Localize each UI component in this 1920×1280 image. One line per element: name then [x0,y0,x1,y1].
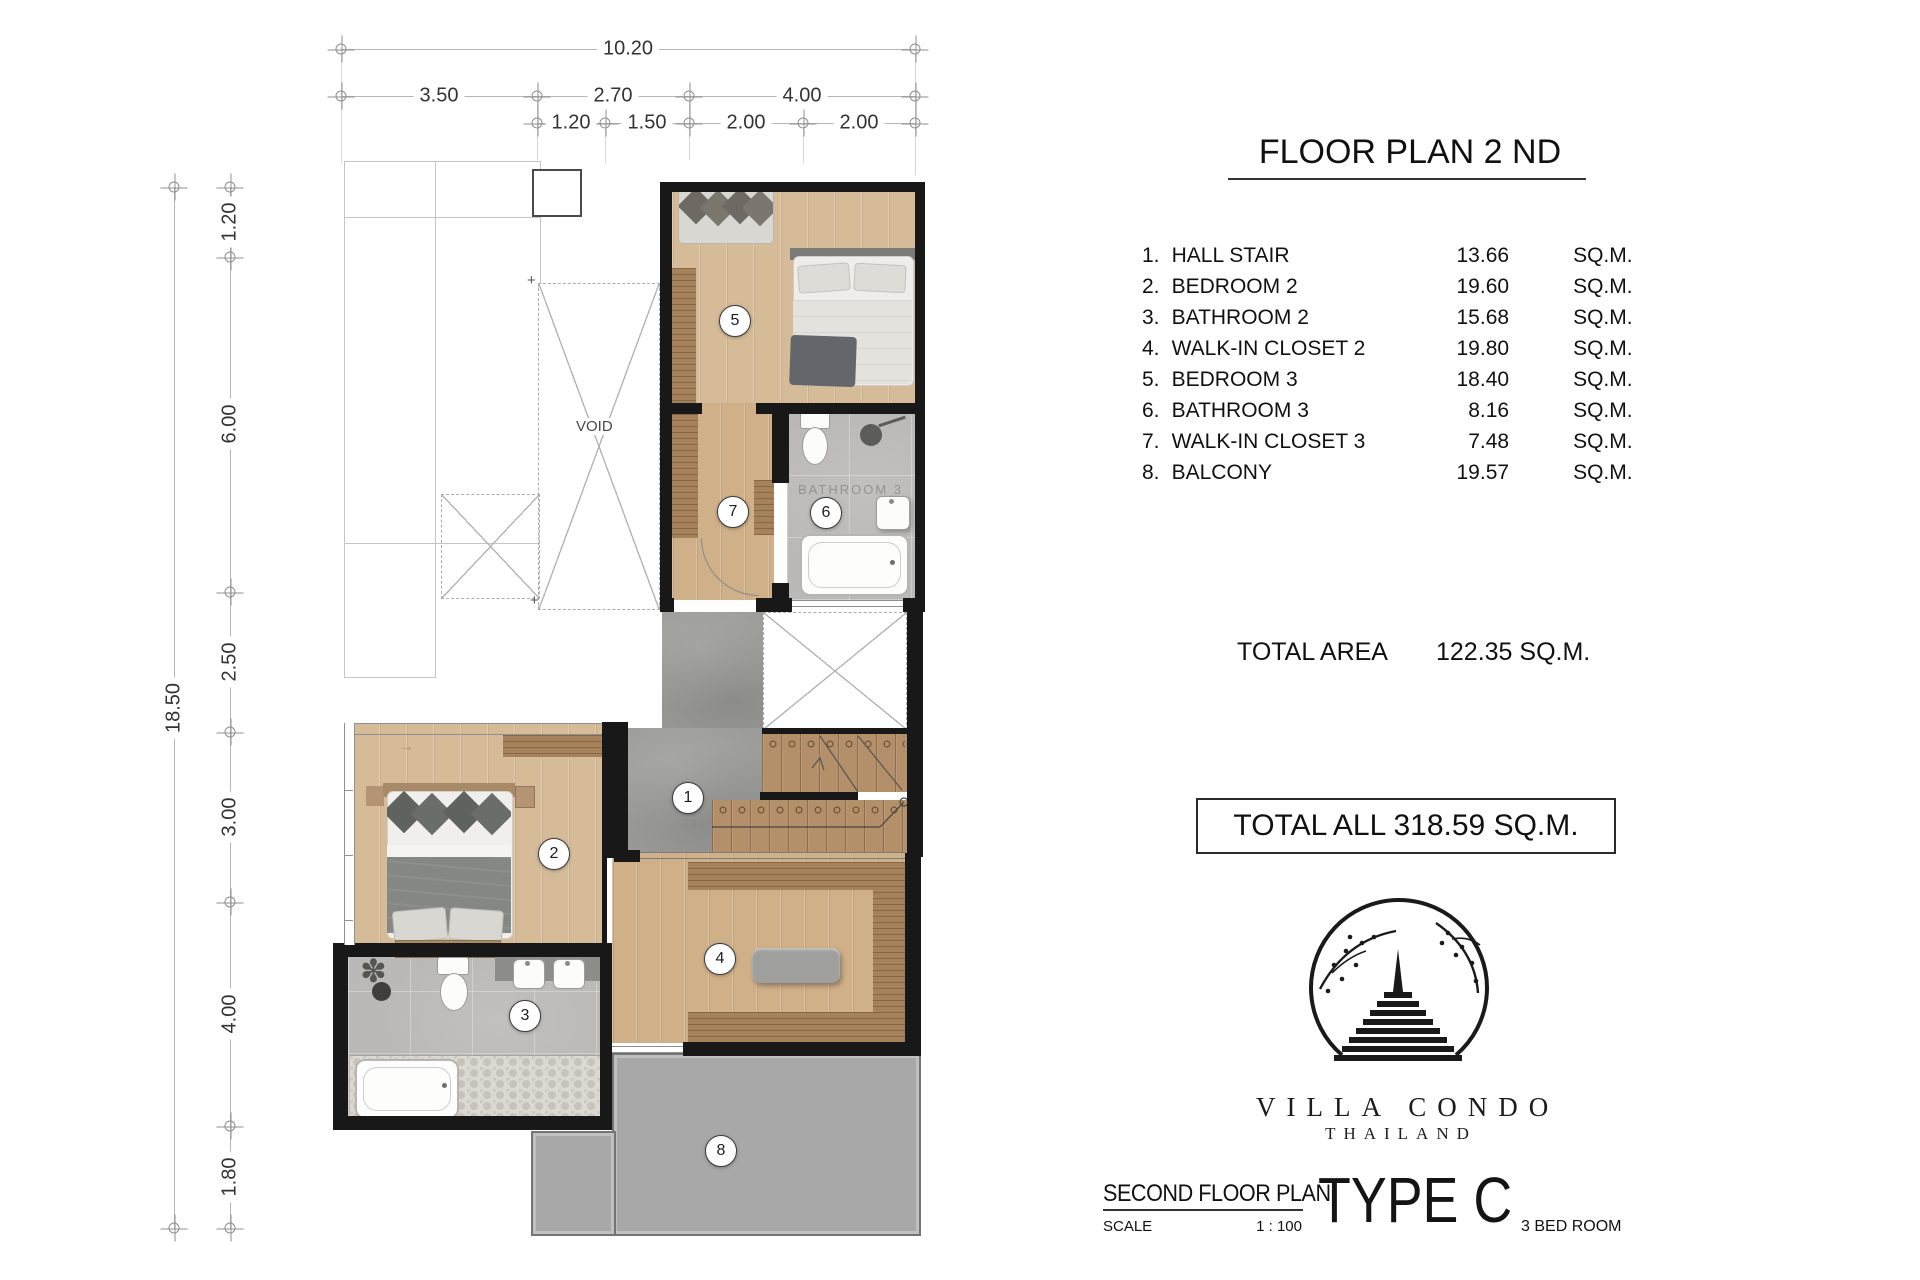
dim-label: 4.00 [219,989,242,1040]
window-mullion [344,920,353,921]
legend-unit: SQ.M. [1573,399,1652,423]
wall [602,722,628,858]
dim-label: 1.50 [622,112,673,135]
dim-label-total-height: 18.50 [163,677,186,739]
dim-marker [910,44,921,55]
legend-area: 19.57 [1430,461,1509,485]
room-badge-bathroom-3: 6 [810,497,842,529]
dim-marker [336,44,347,55]
room-legend: 1.HALL STAIR13.66SQ.M. 2.BEDROOM 219.60S… [1142,240,1652,488]
dim-marker [225,1223,236,1234]
survey-plus-mark: + [527,272,536,289]
shaft-box [532,169,582,217]
dim-marker [169,182,180,193]
legend-unit: SQ.M. [1573,244,1652,268]
second-floor-plan-label: SECOND FLOOR PLAN [1103,1180,1331,1208]
dim-marker [532,118,543,129]
wall [756,598,792,612]
floor-plan-sheet: 10.20 3.50 2.70 4.00 1.20 1.50 2.00 2.00… [0,0,1920,1280]
wall [333,943,612,957]
wall [660,182,925,192]
legend-num: 8. [1142,461,1172,485]
bed-foot-pillow [448,907,504,943]
dim-label: 2.00 [721,112,772,135]
wall [905,853,921,1056]
legend-num: 5. [1142,368,1172,392]
bathtub-drain [890,560,895,565]
balcony-door-line [612,1052,683,1053]
window-mullion [344,855,353,856]
room-badge-bathroom-2: 3 [509,1000,541,1032]
roof-outline-line [344,161,345,677]
wall [614,850,640,862]
shelf-bedroom-2 [503,735,602,757]
total-area-value: 122.35 SQ.M. [1436,638,1590,667]
total-all-box: TOTAL ALL 318.59 SQ.M. [1196,798,1616,854]
scale-label: SCALE [1103,1218,1152,1235]
balcony-deck-left [531,1131,616,1236]
legend-num: 7. [1142,430,1172,454]
legend-name: BEDROOM 3 [1172,368,1431,392]
partition-line [640,858,905,859]
partition-line [640,852,905,853]
legend-unit: SQ.M. [1573,306,1652,330]
bathtub-basin [363,1067,451,1111]
void-label: VOID [572,418,617,435]
legend-name: HALL STAIR [1172,244,1431,268]
page-title: FLOOR PLAN 2 ND [1230,133,1590,172]
legend-name: BEDROOM 2 [1172,275,1431,299]
plant-pot [372,982,391,1001]
legend-row: 2.BEDROOM 219.60SQ.M. [1142,271,1652,302]
legend-area: 19.80 [1430,337,1509,361]
wardrobe-closet-3-right [754,480,774,535]
bed-pillow-zone [387,791,511,839]
legend-name: WALK-IN CLOSET 3 [1172,430,1431,454]
legend-area: 7.48 [1430,430,1509,454]
dim-label: 1.80 [219,1152,242,1203]
legend-row: 1.HALL STAIR13.66SQ.M. [1142,240,1652,271]
vanity-counter [495,957,602,981]
wall [333,1116,612,1130]
legend-unit: SQ.M. [1573,275,1652,299]
legend-unit: SQ.M. [1573,368,1652,392]
legend-num: 4. [1142,337,1172,361]
wall [660,182,672,612]
legend-unit: SQ.M. [1573,461,1652,485]
bathroom-3-watermark: BATHROOM 3 [798,482,903,497]
legend-row: 5.BEDROOM 318.40SQ.M. [1142,364,1652,395]
bed-pillow [797,262,851,294]
light-wall-line [352,734,602,735]
balcony-deck [612,1053,921,1236]
legend-unit: SQ.M. [1573,430,1652,454]
stair-void-cross-box [763,612,907,730]
bed-bedroom-2 [383,783,515,957]
dim-marker [225,182,236,193]
logo-name: VILLA CONDO [1256,1092,1546,1123]
wall [660,403,702,414]
legend-area: 8.16 [1430,399,1509,423]
legend-name: BALCONY [1172,461,1431,485]
legend-name: BATHROOM 3 [1172,399,1431,423]
logo-sub: THAILAND [1256,1124,1546,1144]
dim-label: 6.00 [219,399,242,450]
bed-foot-pillow [392,907,449,944]
faucet-dot [889,499,894,504]
legend-num: 2. [1142,275,1172,299]
legend-row: 7.WALK-IN CLOSET 37.48SQ.M. [1142,426,1652,457]
room-badge-closet-3: 7 [717,496,749,528]
dim-marker [225,252,236,263]
type-label: TYPE C [1318,1163,1512,1237]
dim-line-left-2 [230,187,231,1228]
legend-area: 18.40 [1430,368,1509,392]
dim-marker [684,118,695,129]
bathtub-bathroom-2 [355,1059,459,1119]
roof-outline-line [344,217,540,218]
wall [602,858,607,948]
wall [333,943,348,1130]
legend-area: 13.66 [1430,244,1509,268]
dim-marker [225,587,236,598]
survey-plus-mark: + [530,592,539,609]
legend-row: 8.BALCONY19.57SQ.M. [1142,457,1652,488]
room-badge-bedroom-2: 2 [538,838,570,870]
dim-label: 3.50 [414,85,465,108]
entry-arrow-icon: → [398,738,414,756]
bedroom-count-label: 3 BED ROOM [1521,1218,1621,1236]
title-underline [1228,178,1586,180]
dim-marker [225,1121,236,1132]
total-area-row: TOTAL AREA 122.35 SQ.M. [1237,638,1590,667]
bathtub-drain [442,1083,447,1088]
dim-label: 2.50 [219,637,242,688]
sofa-bedroom-3 [678,186,774,244]
legend-name: WALK-IN CLOSET 2 [1172,337,1431,361]
dim-label-total-width: 10.20 [597,38,659,61]
bed-pillow [853,263,906,294]
bathtub-bathroom-3 [800,534,909,596]
dim-label: 1.20 [219,197,242,248]
skylight-cross-box [441,494,540,599]
nightstand [366,786,384,806]
dim-marker [225,727,236,738]
stair-down-label: DN [683,816,703,832]
villa-condo-logo-icon [1286,893,1512,1079]
stair-landing-floor [662,612,763,728]
wardrobe-closet-3-left [672,414,698,538]
room-badge-closet-2: 4 [704,943,736,975]
room-badge-balcony: 8 [705,1135,737,1167]
dim-marker [532,91,543,102]
legend-unit: SQ.M. [1573,337,1652,361]
dim-marker [225,897,236,908]
dim-marker [684,91,695,102]
dim-label: 2.00 [834,112,885,135]
dim-marker [798,118,809,129]
dim-marker [600,118,611,129]
room-badge-bedroom-3: 5 [719,305,751,337]
roof-outline-line [344,677,436,678]
dim-label: 4.00 [777,85,828,108]
wall [683,1042,921,1056]
room-badge-hall-stair: 1 [672,782,704,814]
bathtub-basin [808,542,901,588]
glass-wall-line [792,606,903,607]
wall [772,403,789,483]
balcony-door-line [612,1046,683,1047]
bench-closet-2 [752,948,840,983]
dim-marker [910,118,921,129]
footer-underline [1103,1209,1303,1211]
scale-value: 1 : 100 [1240,1218,1302,1235]
legend-area: 19.60 [1430,275,1509,299]
dim-marker [169,1223,180,1234]
dim-label: 1.20 [546,112,597,135]
toilet-bowl [802,427,828,465]
void-area [538,283,660,610]
legend-num: 3. [1142,306,1172,330]
faucet-dot [565,961,570,966]
window-wall-bedroom-2 [344,723,355,945]
toilet-bowl [440,973,468,1011]
bed-pillow [471,793,511,835]
dim-label: 3.00 [219,792,242,843]
wall [903,598,925,612]
stair-direction-lines [700,720,920,860]
wardrobe-closet-2-bottom [688,1012,907,1044]
bed-bedroom-3 [790,248,915,388]
legend-row: 3.BATHROOM 215.68SQ.M. [1142,302,1652,333]
wardrobe-closet-2-top [688,862,880,890]
faucet-dot [525,961,530,966]
wall [907,612,923,857]
legend-num: 6. [1142,399,1172,423]
legend-row: 6.BATHROOM 38.16SQ.M. [1142,395,1652,426]
window-mullion [344,790,353,791]
wall [660,598,674,612]
roof-outline-line [435,161,436,677]
light-wall-line [352,723,602,724]
total-area-label: TOTAL AREA [1237,638,1388,667]
legend-area: 15.68 [1430,306,1509,330]
dim-label: 2.70 [588,85,639,108]
wardrobe-bedroom-3 [672,268,696,403]
glass-wall-line [792,600,903,601]
wall [915,182,925,612]
nightstand [515,786,535,808]
legend-name: BATHROOM 2 [1172,306,1431,330]
total-all-text: TOTAL ALL 318.59 SQ.M. [1233,809,1578,843]
legend-row: 4.WALK-IN CLOSET 219.80SQ.M. [1142,333,1652,364]
bed-throw [789,335,857,387]
dim-marker [336,91,347,102]
legend-num: 1. [1142,244,1172,268]
roof-outline-line [344,161,540,162]
wall [600,943,612,1130]
dim-marker [910,91,921,102]
